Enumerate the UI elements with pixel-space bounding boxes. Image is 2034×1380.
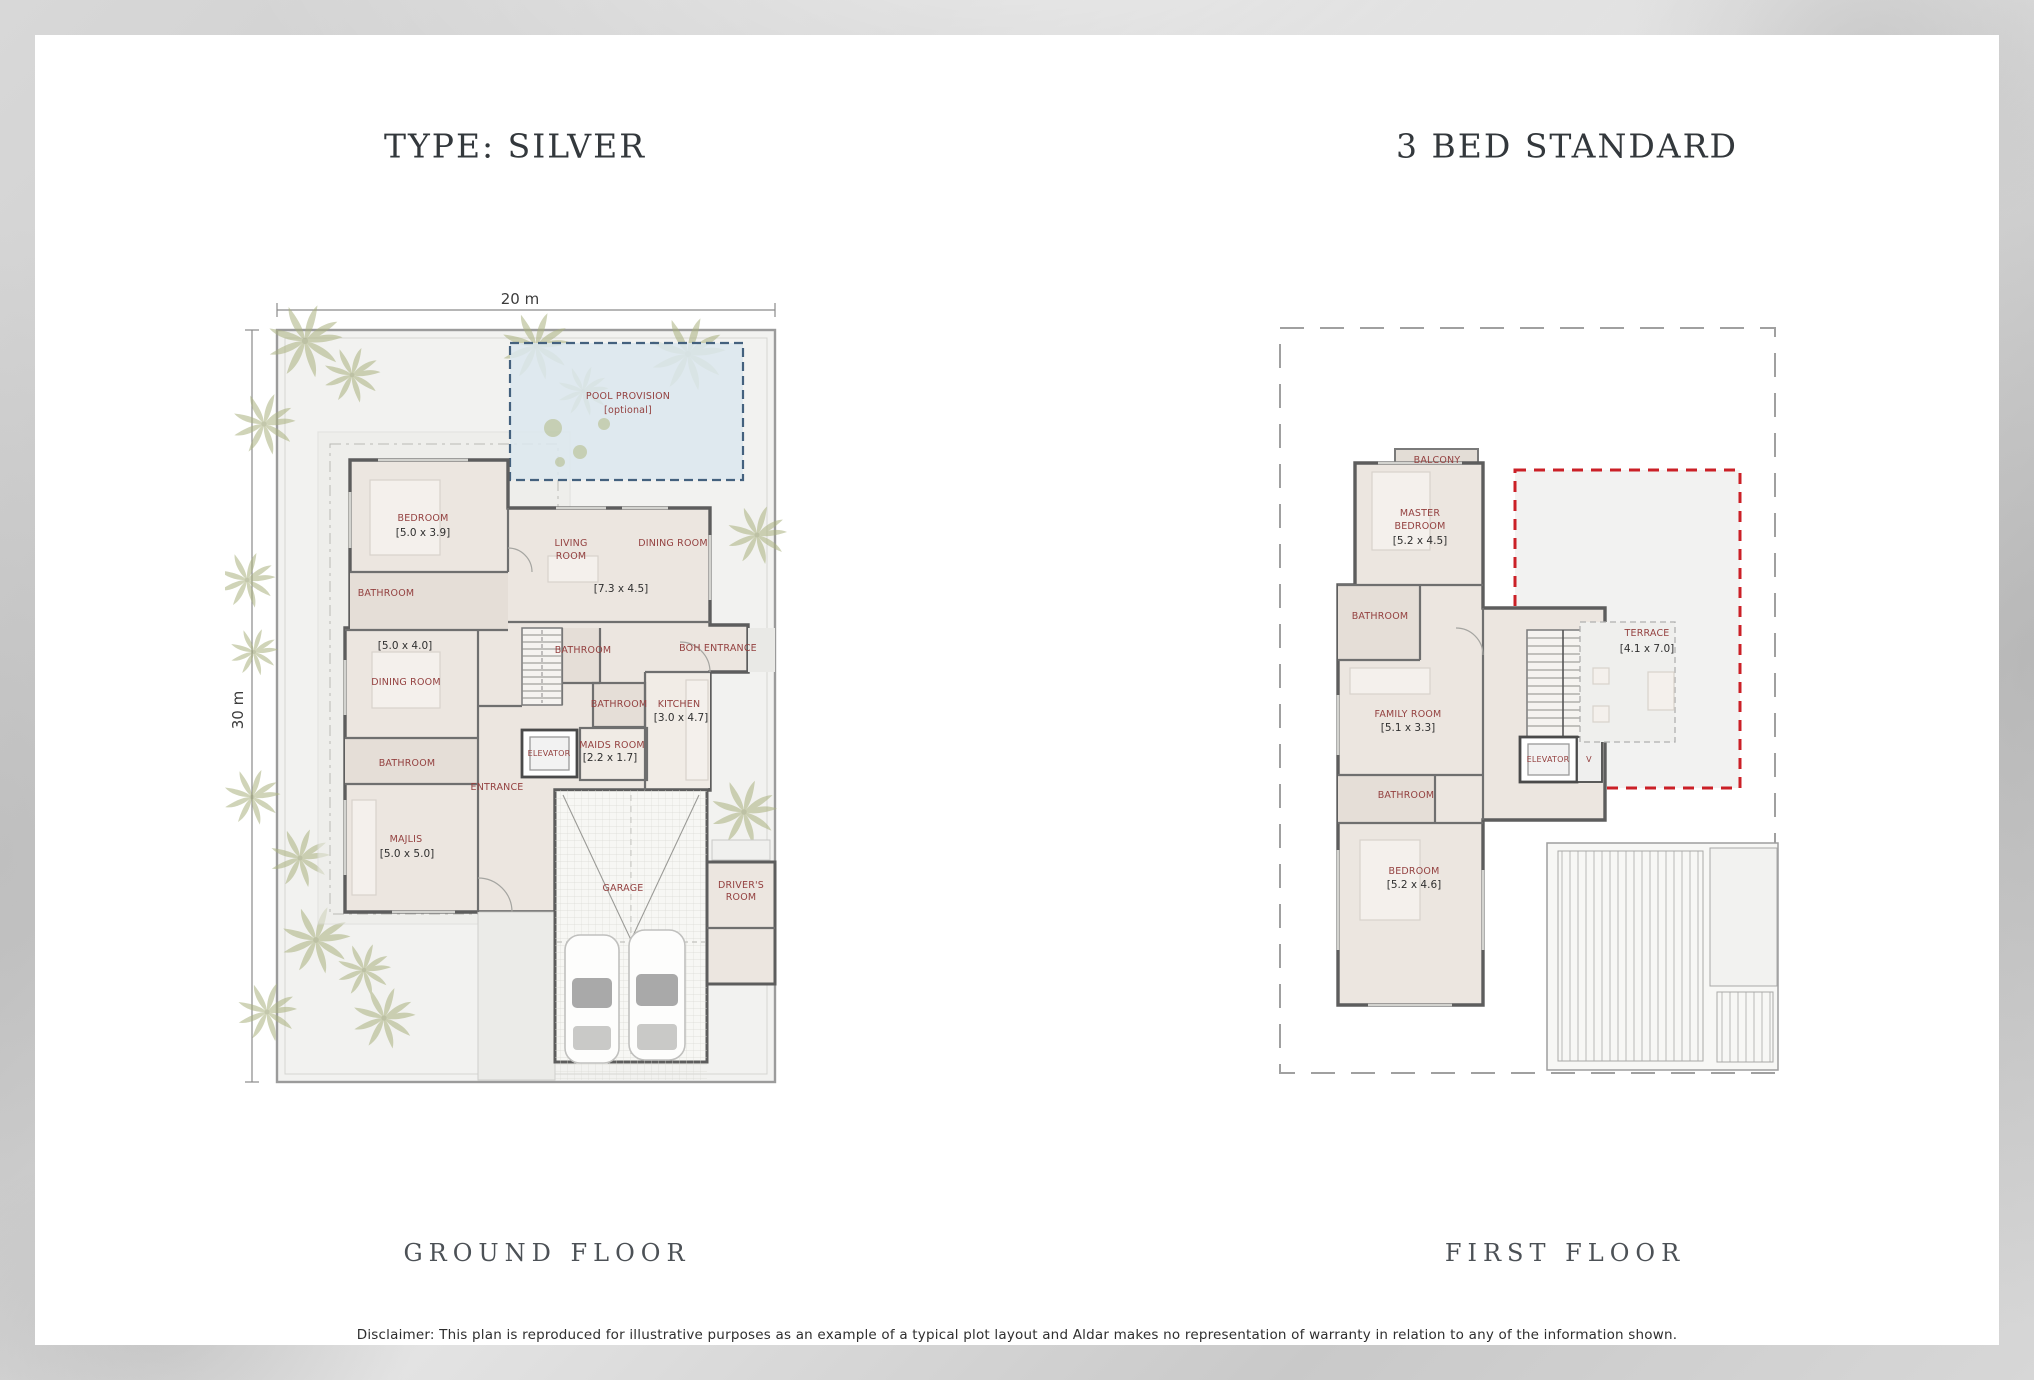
gf-plot-height-label: 30 m — [229, 691, 247, 729]
ff-bedroom-label: BEDROOM — [1389, 866, 1440, 877]
ff-family-room-label: FAMILY ROOM — [1375, 709, 1442, 720]
first-floor-caption: FIRST FLOOR — [1445, 1239, 1685, 1267]
ff-family-room-size: [5.1 x 3.3] — [1381, 722, 1435, 734]
gf-maids-room-label: MAIDS ROOM — [579, 740, 645, 751]
ff-terrace-area — [1580, 622, 1675, 742]
ground-floor-plan: 20 m 30 m — [225, 280, 805, 1095]
brochure-page: { "header": { "type_title": "TYPE: SILVE… — [0, 0, 2034, 1380]
gf-living-dining-size: [7.3 x 4.5] — [594, 583, 648, 595]
ff-bathroom-mid-label: BATHROOM — [1378, 790, 1435, 801]
gf-stairs — [522, 628, 562, 705]
gf-bedroom-label: BEDROOM — [398, 513, 449, 524]
first-floor-plan: BALCONY MASTER BEDROOM [5.2 x 4.5] BATHR… — [1265, 315, 1795, 1090]
disclaimer-text: Disclaimer: This plan is reproduced for … — [35, 1327, 1999, 1343]
gf-drivers-room-block — [707, 840, 775, 984]
gf-drivers-room-label-1: DRIVER'S — [718, 880, 764, 891]
gf-dining-left-size: [5.0 x 4.0] — [378, 640, 432, 652]
gf-car-right — [629, 930, 685, 1060]
bed-count-title: 3 BED STANDARD — [1396, 127, 1738, 166]
gf-bathroom-mid-label: BATHROOM — [591, 699, 648, 710]
gf-drivers-room-label-2: ROOM — [726, 892, 757, 903]
gf-plot-width-label: 20 m — [501, 290, 539, 308]
gf-bathroom-lower-label: BATHROOM — [379, 758, 436, 769]
gf-driveway — [555, 1062, 707, 1080]
ff-master-label-1: MASTER — [1400, 508, 1441, 519]
gf-kitchen-size: [3.0 x 4.7] — [654, 712, 708, 724]
gf-bedroom-size: [5.0 x 3.9] — [396, 527, 450, 539]
gf-entrance-label: ENTRANCE — [471, 782, 524, 793]
gf-elevator-label: ELEVATOR — [528, 749, 571, 758]
ff-louvre-deck — [1547, 843, 1778, 1070]
gf-entry-walkway — [478, 912, 555, 1080]
gf-garage-block — [555, 790, 707, 1080]
ff-terrace-size: [4.1 x 7.0] — [1620, 643, 1674, 655]
ff-bedroom-size: [5.2 x 4.6] — [1387, 879, 1441, 891]
ff-balcony-label: BALCONY — [1414, 455, 1461, 466]
ground-floor-caption: GROUND FLOOR — [403, 1239, 690, 1267]
type-title: TYPE: SILVER — [384, 127, 646, 166]
gf-pool-label: POOL PROVISION — [586, 391, 670, 402]
gf-dining-right-label: DINING ROOM — [638, 538, 707, 549]
ff-master-label-2: BEDROOM — [1395, 521, 1446, 532]
gf-bathroom-stairs-label: BATHROOM — [555, 645, 612, 656]
gf-majlis-label: MAJLIS — [390, 834, 423, 845]
gf-kitchen-label: KITCHEN — [658, 699, 701, 710]
ff-master-size: [5.2 x 4.5] — [1393, 535, 1447, 547]
ff-void-label: V — [1586, 755, 1592, 764]
gf-majlis-size: [5.0 x 5.0] — [380, 848, 434, 860]
gf-car-left — [565, 935, 619, 1063]
gf-dining-left-label: DINING ROOM — [371, 677, 440, 688]
ff-elevator-label: ELEVATOR — [1527, 755, 1570, 764]
gf-pool-optional-label: [optional] — [604, 405, 652, 416]
gf-garage-label: GARAGE — [603, 883, 644, 894]
gf-bathroom-upper-label: BATHROOM — [358, 588, 415, 599]
ff-terrace-label: TERRACE — [1624, 628, 1670, 639]
gf-living-room-label-1: LIVING — [554, 538, 587, 549]
gf-maids-room-size: [2.2 x 1.7] — [583, 752, 637, 764]
gf-living-room-label-2: ROOM — [556, 551, 587, 562]
ff-bathroom-upper-label: BATHROOM — [1352, 611, 1409, 622]
gf-boh-entrance-label: BOH ENTRANCE — [679, 643, 757, 654]
